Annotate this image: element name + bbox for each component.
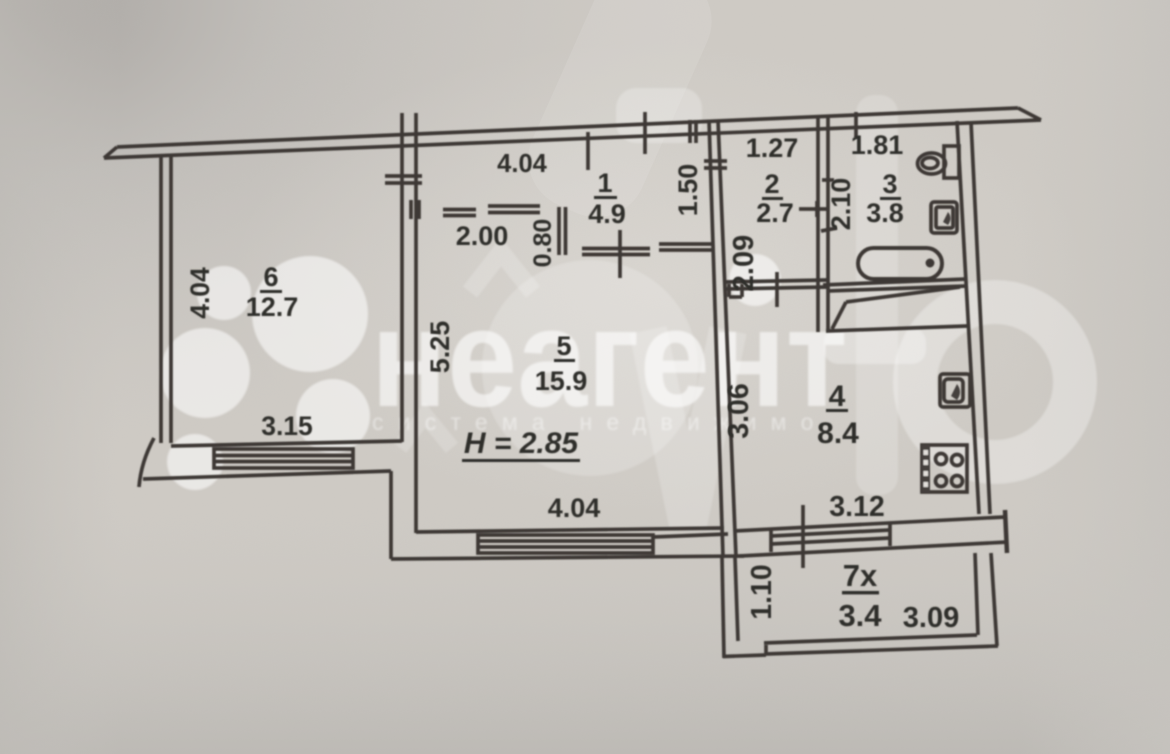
svg-text:4.04: 4.04 — [548, 493, 601, 523]
svg-text:2.09: 2.09 — [728, 235, 760, 291]
svg-text:3.06: 3.06 — [723, 383, 755, 438]
svg-text:3: 3 — [882, 169, 897, 199]
svg-text:5.25: 5.25 — [425, 321, 455, 374]
svg-text:2.7: 2.7 — [756, 198, 794, 228]
svg-text:15.9: 15.9 — [535, 366, 588, 396]
svg-text:H = 2.85: H = 2.85 — [464, 427, 580, 460]
svg-text:4.04: 4.04 — [497, 150, 547, 178]
svg-text:система недвижимо: система недвижимо — [372, 409, 828, 435]
svg-text:7x: 7x — [843, 558, 878, 593]
svg-text:3.4: 3.4 — [838, 598, 882, 633]
svg-text:1.81: 1.81 — [851, 130, 904, 160]
svg-text:1.27: 1.27 — [746, 133, 799, 163]
svg-text:3.8: 3.8 — [866, 198, 904, 228]
svg-text:3.09: 3.09 — [903, 602, 959, 634]
svg-text:2: 2 — [764, 169, 779, 199]
svg-text:4.04: 4.04 — [185, 267, 215, 319]
svg-text:6: 6 — [263, 262, 278, 292]
svg-text:0.80: 0.80 — [529, 219, 557, 268]
svg-text:5: 5 — [556, 331, 571, 361]
svg-text:2.10: 2.10 — [826, 178, 856, 231]
svg-text:4: 4 — [829, 380, 846, 413]
svg-text:1: 1 — [597, 168, 612, 198]
svg-text:1.10: 1.10 — [746, 564, 778, 619]
svg-text:8.4: 8.4 — [817, 417, 859, 450]
svg-text:3.15: 3.15 — [261, 411, 313, 441]
svg-text:4.9: 4.9 — [588, 199, 626, 229]
svg-text:12.7: 12.7 — [246, 292, 299, 322]
svg-text:1.50: 1.50 — [673, 164, 703, 217]
svg-text:3.12: 3.12 — [829, 491, 884, 523]
svg-text:2.00: 2.00 — [456, 221, 509, 251]
